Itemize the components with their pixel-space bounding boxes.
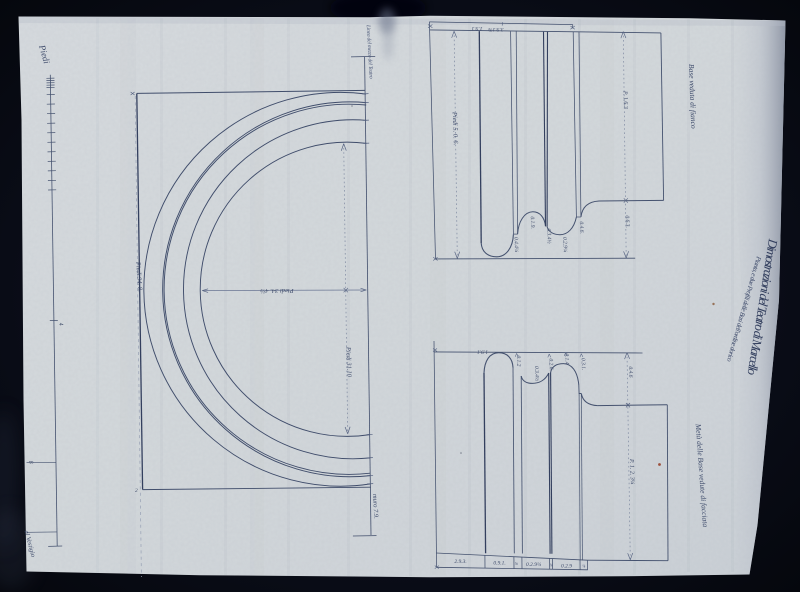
svg-text:0.4.4¼: 0.4.4¼ — [513, 237, 521, 252]
svg-text:0.4.6.: 0.4.6. — [578, 221, 585, 234]
svg-text:0.9.1.: 0.9.1. — [493, 561, 505, 567]
svg-text:Piedi 31.10: Piedi 31.10 — [344, 346, 352, 378]
svg-text:0.2.9¼: 0.2.9¼ — [561, 237, 568, 252]
svg-text:0.1.4: 0.1.4 — [563, 353, 570, 364]
svg-text:0.1.2: 0.1.2 — [515, 355, 521, 366]
svg-text:P. 1. 2. 3¼: P. 1. 2. 3¼ — [628, 458, 635, 485]
svg-text:0.3.1.: 0.3.1. — [580, 358, 586, 371]
svg-text:0.4.6: 0.4.6 — [627, 366, 634, 377]
svg-text:muro 7.9.: muro 7.9. — [371, 494, 379, 520]
svg-text:P. 1.6.3: P. 1.6.3 — [621, 90, 628, 109]
svg-text:Piedi 5. 0. 6.: Piedi 5. 0. 6. — [451, 111, 459, 146]
svg-text:0.3.4½: 0.3.4½ — [545, 228, 553, 243]
svg-text:3.9.1¾: 3.9.1¾ — [488, 26, 504, 32]
svg-text:0.2.9¼: 0.2.9¼ — [526, 562, 541, 568]
svg-text:⅛: ⅛ — [550, 563, 553, 568]
svg-text:0.2.6.: 0.2.6. — [547, 358, 553, 371]
svg-text:0.3.4½: 0.3.4½ — [533, 366, 541, 381]
svg-text:⅛: ⅛ — [515, 561, 518, 566]
svg-text:1.9.1: 1.9.1 — [471, 25, 482, 31]
svg-text:0.2.9: 0.2.9 — [561, 564, 572, 570]
svg-text:⅛: ⅛ — [582, 564, 585, 569]
svg-text:1.9.1: 1.9.1 — [477, 349, 488, 355]
svg-text:0.1.9.: 0.1.9. — [529, 216, 535, 229]
svg-text:2: 2 — [135, 488, 138, 494]
svg-text:2.9.3.: 2.9.3. — [454, 559, 466, 565]
svg-text:0.6.3.: 0.6.3. — [624, 215, 630, 228]
svg-text:Piedi 34. 4½: Piedi 34. 4½ — [260, 287, 294, 294]
